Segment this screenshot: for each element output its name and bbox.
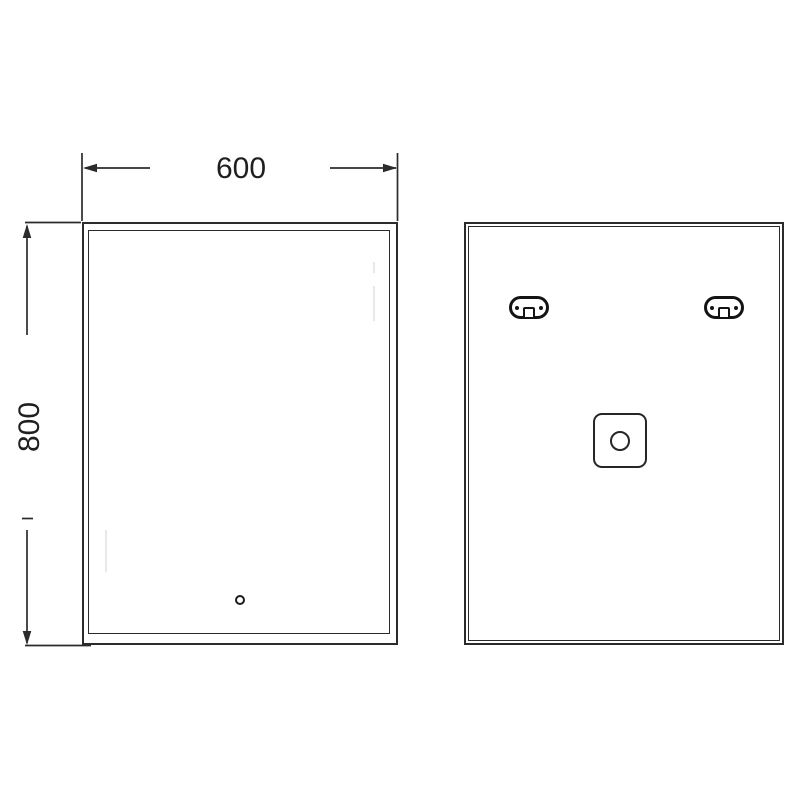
bracket-screw-hole-icon <box>710 306 714 310</box>
glass-reflection-line <box>373 262 375 273</box>
front-view <box>82 222 398 645</box>
arrowhead-down-icon <box>23 631 32 645</box>
cable-hole-icon <box>610 431 630 451</box>
bracket-keyhole-notch-icon <box>718 307 730 319</box>
bracket-screw-hole-icon <box>539 306 543 310</box>
mounting-bracket-left-icon <box>509 296 549 319</box>
glass-reflection-line <box>105 530 107 572</box>
touch-sensor-icon <box>235 595 245 605</box>
back-view <box>464 222 784 645</box>
arrowhead-right-icon <box>383 164 397 173</box>
mounting-bracket-right-icon <box>704 296 744 319</box>
arrowhead-up-icon <box>23 224 32 238</box>
width-dimension-label: 600 <box>216 154 266 184</box>
bracket-screw-hole-icon <box>734 306 738 310</box>
height-dimension-label: 800 <box>15 402 45 452</box>
technical-drawing: 600 800 <box>0 0 800 800</box>
bracket-screw-hole-icon <box>515 306 519 310</box>
glass-reflection-line <box>373 286 375 321</box>
junction-box-icon <box>593 413 647 468</box>
arrowhead-left-icon <box>83 164 97 173</box>
front-view-inner-frame <box>88 230 390 634</box>
bracket-keyhole-notch-icon <box>523 307 535 319</box>
